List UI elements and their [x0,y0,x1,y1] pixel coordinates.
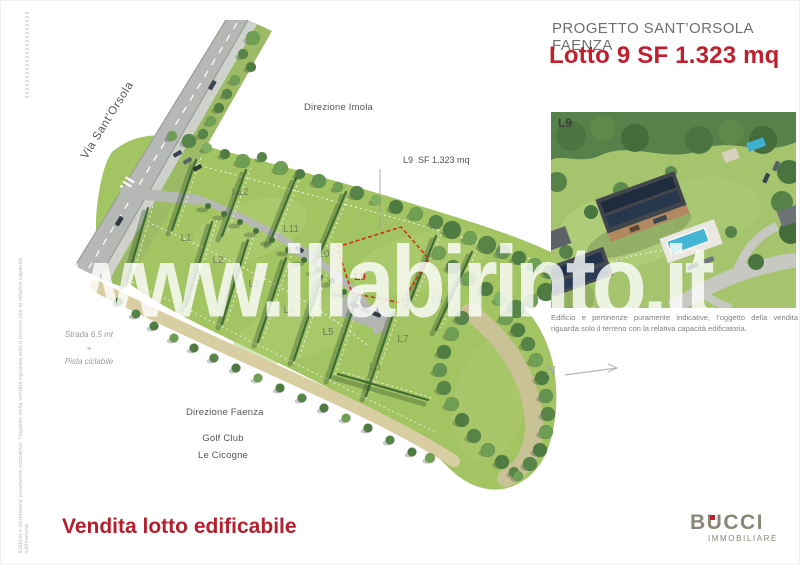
lot9-callout-label: L9 SF 1.323 mq [403,155,470,165]
agency-logo: BUCCI IMMOBILIARE [690,512,778,543]
road-note-line1: Strada 6,5 mt [54,328,124,342]
side-note-vertical: Edificio e pertinenze puramente indicati… [18,238,30,553]
lot-label-l6: L6 [369,362,381,373]
inset-lot-tag: L9 [558,116,572,130]
road-note: Strada 6,5 mt + Pista ciclabile [54,328,124,369]
agency-name: BUCCI [690,512,778,533]
lot-headline: Lotto 9 SF 1.323 mq [549,42,780,70]
direction-faenza-label: Direzione Faenza [186,407,264,418]
direction-imola-label: Direzione Imola [304,102,373,113]
road-note-plus: + [54,342,124,356]
golf-club-line2: Le Cicogne [178,448,268,465]
agency-subtitle: IMMOBILIARE [690,534,778,543]
inset-caption: Edificio e pertinenze puramente indicati… [551,312,798,335]
sale-label: Vendita lotto edificabile [62,515,297,539]
road-note-line3: Pista ciclabile [54,355,124,369]
compass-n-label: N [546,364,556,379]
brochure-page: L1L2L3L4L5L6L7L8L9L10L11L12 [0,0,800,565]
logo-red-square-icon [710,515,715,520]
lot-label-l12: L12 [232,187,249,198]
fine-print-vertical [25,12,29,100]
north-compass: N [546,362,625,380]
north-arrow-icon [561,362,625,380]
golf-club-line1: Golf Club [178,431,268,448]
golf-club-label: Golf Club Le Cicogne [178,431,268,464]
